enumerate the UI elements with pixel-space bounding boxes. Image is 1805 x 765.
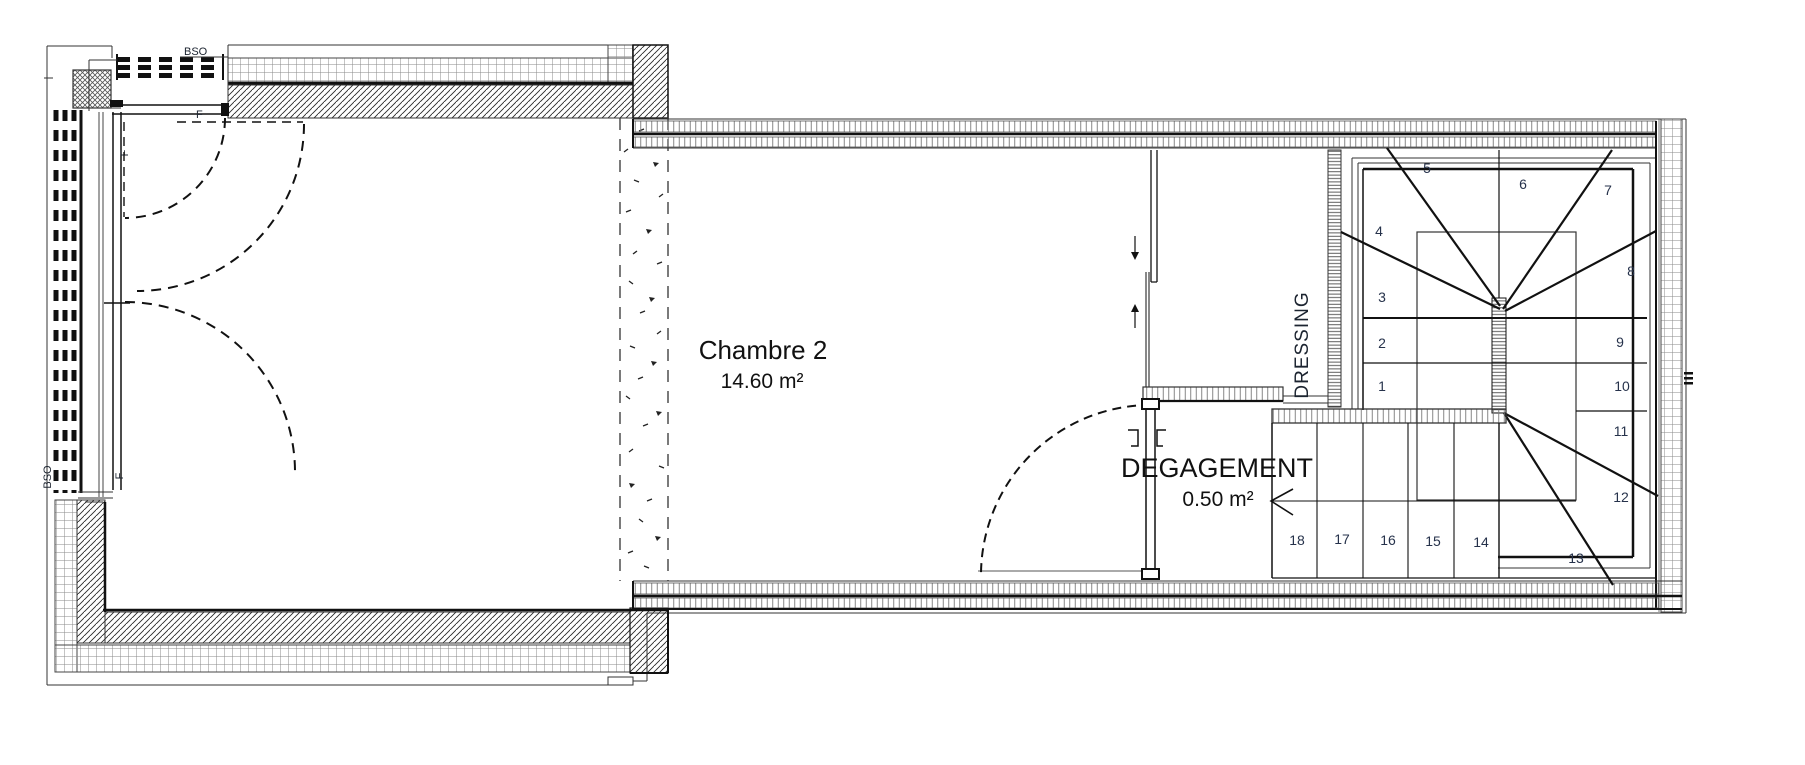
chambre2-label: Chambre 2 14.60 m² — [699, 335, 828, 393]
step-number: 1 — [1378, 378, 1386, 394]
door-frame-bottom — [1142, 569, 1159, 579]
swing-arc-small — [125, 118, 225, 218]
partition-wall — [1146, 150, 1157, 387]
bottom-left-wall — [55, 500, 668, 673]
concrete-speckles — [629, 162, 662, 541]
step-number: 6 — [1519, 176, 1527, 192]
left-window-frame — [113, 112, 121, 490]
floor-plan-drawing: BSO BSO F F F — [0, 0, 1805, 765]
sliding-arrows — [1131, 236, 1139, 328]
door-leaf — [1146, 407, 1155, 571]
room-area-degagement: 0.50 m² — [1182, 488, 1253, 511]
step-number: 12 — [1613, 489, 1629, 505]
step-number: 4 — [1375, 223, 1383, 239]
f-left-lower-label: F — [114, 472, 126, 479]
top-window: F — [112, 103, 303, 217]
degagement-top-wall — [1143, 387, 1283, 401]
floor-plan-canvas: BSO BSO F F F — [0, 0, 1805, 765]
degagement-door — [981, 399, 1166, 579]
corner-post — [633, 45, 668, 118]
door-swing-arc — [981, 405, 1151, 575]
stair-spine-wall — [1492, 298, 1506, 413]
step-number: 13 — [1568, 550, 1584, 566]
room-area-chambre2: 14.60 m² — [721, 370, 804, 393]
concrete-column-band — [620, 118, 668, 581]
room-name-dressing: DRESSING — [1292, 291, 1313, 398]
landing-edge-strip — [1272, 409, 1506, 423]
step-number: 7 — [1604, 182, 1612, 198]
step-number: 10 — [1614, 378, 1630, 394]
arrow-up-icon — [1131, 304, 1139, 312]
door-frame-top — [1142, 399, 1159, 409]
step-number: 3 — [1378, 289, 1386, 305]
step-number: 17 — [1334, 531, 1350, 547]
entry-arrow-icon — [1271, 489, 1293, 515]
step-number: 15 — [1425, 533, 1441, 549]
left-window-assembly: BSO F F — [42, 100, 131, 502]
bso-left-label: BSO — [42, 465, 54, 489]
f-left-upper-label: F — [119, 149, 131, 156]
step-number: 18 — [1289, 532, 1305, 548]
top-window-band — [633, 119, 1656, 148]
step-number: 11 — [1614, 423, 1629, 439]
room-name-chambre2: Chambre 2 — [699, 335, 828, 365]
lower-flight-lines — [1272, 423, 1655, 578]
step-number: 14 — [1473, 534, 1489, 550]
step-number: 5 — [1423, 160, 1431, 176]
right-window-band — [1656, 119, 1693, 612]
f-top-label: F — [196, 109, 203, 121]
top-left-wall — [228, 45, 668, 118]
room-name-degagement: DEGAGEMENT — [1121, 453, 1313, 483]
arrow-down-icon — [1131, 252, 1139, 260]
bso-top-label: BSO — [184, 46, 208, 58]
swing-arc-upper — [137, 124, 304, 291]
step-number: 2 — [1378, 335, 1386, 351]
step-number: 16 — [1380, 532, 1396, 548]
step-number: 8 — [1627, 263, 1635, 279]
open-sash-dashed — [124, 122, 303, 217]
window-jamb-block — [110, 100, 123, 107]
concrete-ticks — [624, 129, 664, 568]
level-mark — [1684, 372, 1693, 385]
window-swing-arcs — [125, 118, 304, 472]
step-number: 9 — [1616, 334, 1624, 350]
swing-arc-lower — [125, 302, 295, 472]
bso-shutter-top: BSO — [117, 46, 228, 80]
